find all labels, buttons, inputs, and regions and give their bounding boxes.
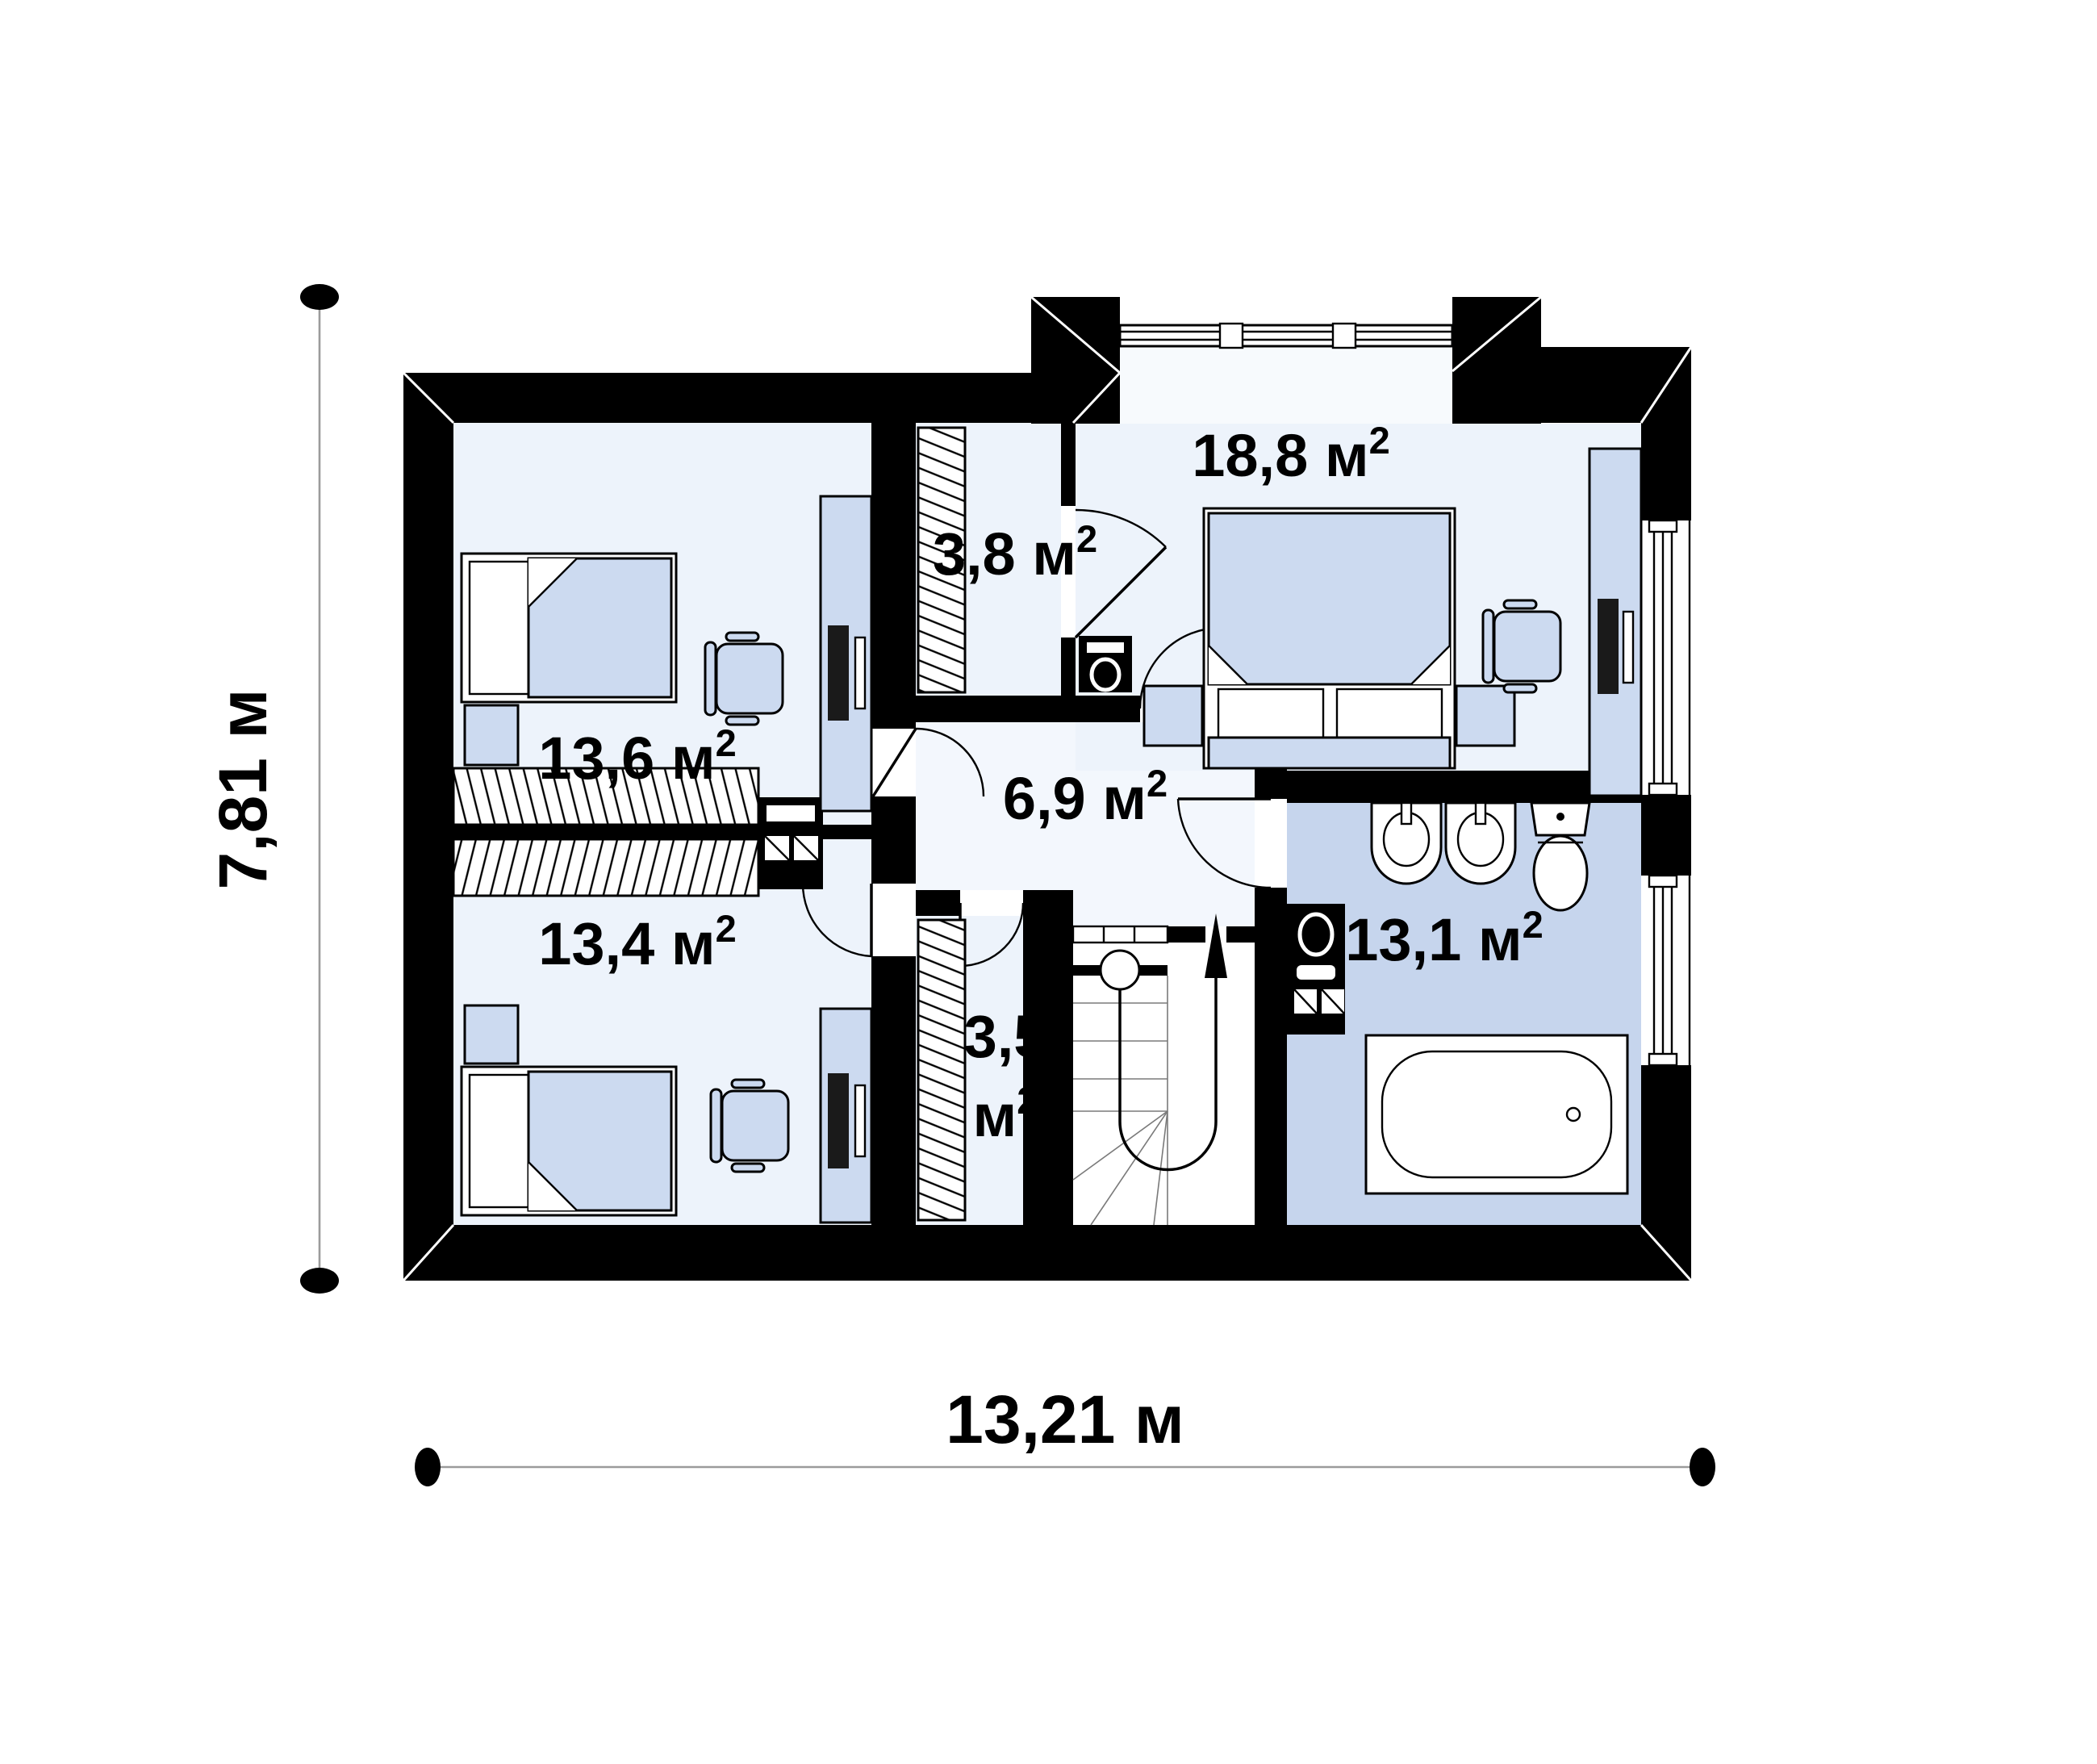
monitor-icon	[1623, 612, 1633, 683]
double-bed	[1204, 508, 1455, 768]
stair-newel-post	[1101, 951, 1139, 989]
keyboard-icon	[828, 625, 849, 721]
area-label-bedroom-top-left: 13,6 м2	[538, 721, 736, 792]
wall-stairs-bath	[1255, 888, 1287, 1225]
monitor-icon	[855, 637, 865, 709]
chair-back	[705, 642, 716, 715]
monitor-icon	[855, 1085, 865, 1156]
door-gap-hall-closet-bottom	[960, 890, 1023, 916]
bed-blanket	[1209, 513, 1450, 684]
area-label-bedroom-top-right: 18,8 м2	[1192, 419, 1389, 489]
desk-top-left	[821, 496, 871, 811]
dimension-width-label: 13,21 м	[946, 1382, 1184, 1457]
door-gap-hall-bathroom	[1255, 799, 1287, 888]
dimension-width: 13,21 м	[415, 1382, 1715, 1486]
wall-closet-top-right-a	[1061, 424, 1076, 506]
window-bathroom	[1641, 876, 1691, 1065]
appliance-stack	[1287, 904, 1345, 1035]
area-label-closet-bottom-value: 3,5	[964, 1003, 1047, 1070]
washbasin-left	[1372, 803, 1441, 884]
wardrobe-closet-bottom	[918, 920, 965, 1220]
chair-back	[711, 1089, 721, 1162]
desk-bottom-left	[821, 1009, 871, 1223]
keyboard-icon	[1598, 599, 1619, 694]
stair-railing	[1073, 926, 1255, 943]
toilet	[1531, 803, 1589, 910]
wall-hall-bottom	[916, 890, 960, 916]
wall-bath-top	[1287, 771, 1641, 803]
bed-footboard	[1209, 738, 1450, 768]
area-label-hall: 6,9 м2	[1003, 762, 1168, 832]
wall-middle-vertical	[871, 423, 916, 1225]
wall-left	[403, 373, 453, 1281]
area-label-closet-top: 3,8 м2	[933, 517, 1097, 587]
bathtub	[1366, 1035, 1627, 1193]
washbasin-right	[1446, 803, 1515, 884]
single-bed-bottom	[462, 1067, 676, 1215]
bed-pillow-left	[1218, 689, 1323, 742]
floor-plan-drawing: 13,6 м2 3,8 м2 18,8 м2 6,9 м2 13,4 м2 3,…	[0, 0, 2097, 1764]
dimension-height: 7,81 м	[205, 284, 339, 1294]
washing-machine	[1079, 636, 1132, 692]
office-chair-bottom-left	[711, 1080, 788, 1172]
dormer-window	[1120, 324, 1452, 348]
window-bedroom-top-right	[1641, 520, 1691, 795]
bed-pillow	[470, 1075, 533, 1207]
nightstand-top	[465, 705, 518, 765]
dimension-height-label: 7,81 м	[205, 689, 281, 890]
floor-dormer-nook	[1120, 337, 1452, 424]
nightstand-right	[1456, 686, 1514, 746]
wall-bottom	[403, 1225, 1691, 1281]
area-label-bathroom: 13,1 м2	[1345, 903, 1543, 973]
wall-top-left	[403, 373, 1073, 423]
wall-closet-top-right-b	[1061, 637, 1076, 696]
desk-top-right	[1589, 449, 1641, 796]
single-bed-top	[462, 554, 676, 702]
area-label-bedroom-bottom-left: 13,4 м2	[538, 907, 736, 977]
nightstand-left	[1144, 686, 1202, 746]
wall-right	[1641, 347, 1691, 1281]
floor-plan-page: 13,6 м2 3,8 м2 18,8 м2 6,9 м2 13,4 м2 3,…	[0, 0, 2097, 1764]
wardrobe-bedroom-bottom-left	[453, 839, 758, 896]
nightstand-bottom	[465, 1005, 518, 1064]
keyboard-icon	[828, 1073, 849, 1168]
bed-pillow	[470, 562, 533, 694]
office-chair-top-right	[1483, 600, 1560, 692]
chair-back	[1483, 610, 1493, 683]
office-chair-top-left	[705, 633, 783, 725]
door-gap-hall-bedroom-bottom-left	[871, 884, 916, 956]
bed-pillow-right	[1337, 689, 1442, 742]
